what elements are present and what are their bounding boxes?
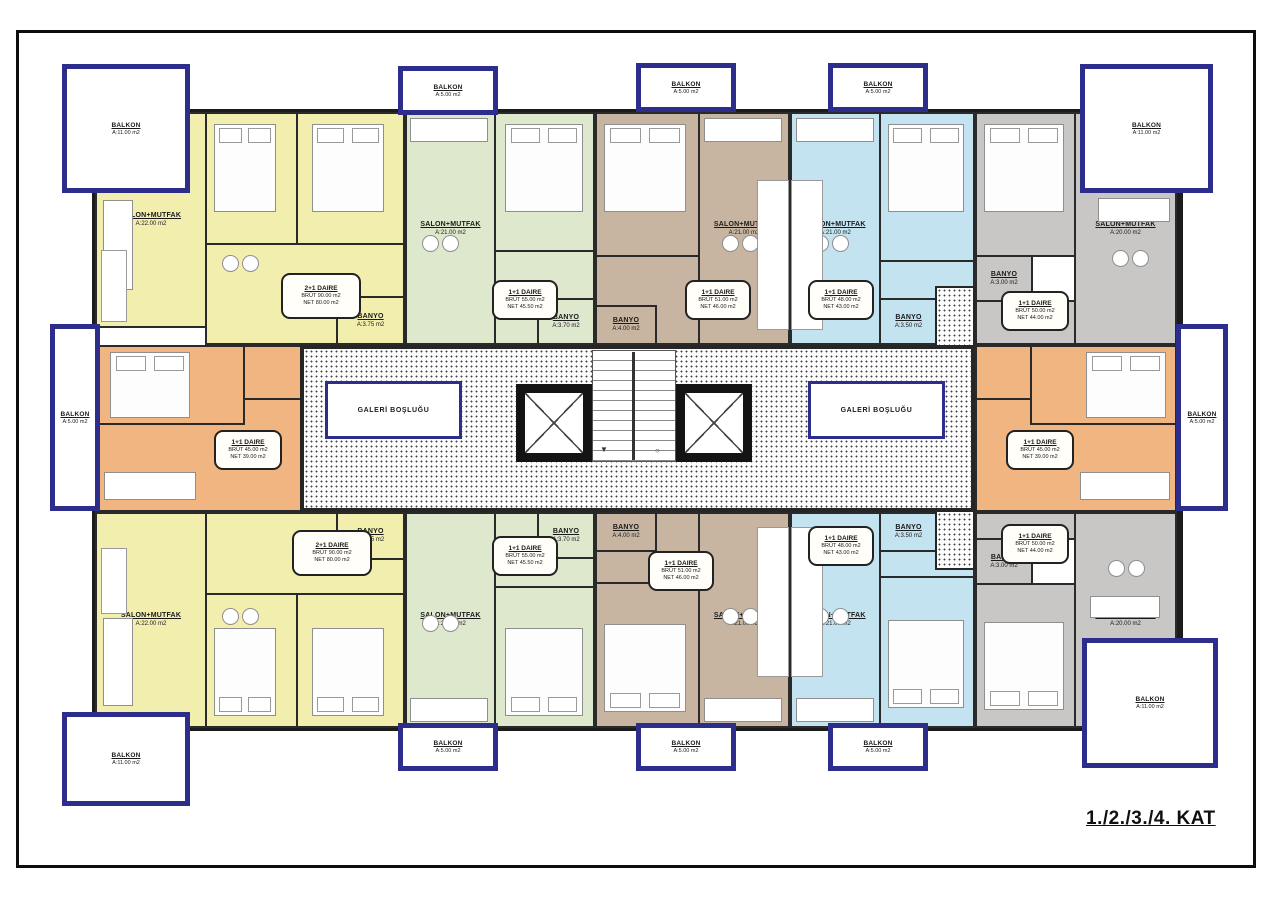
balcony-bottom-2: BALKON A:5.00 m2 bbox=[636, 723, 736, 771]
unit-label-blue-bottom: 1+1 DAIRE BRÜT 48.00 m2 NET 43.00 m2 bbox=[808, 526, 874, 566]
room-area: A:3.70 m2 bbox=[552, 323, 579, 330]
unit-brut: BRÜT 48.00 m2 bbox=[821, 543, 860, 550]
unit-net: NET 80.00 m2 bbox=[303, 300, 338, 307]
unit-net: NET 80.00 m2 bbox=[314, 557, 349, 564]
sofa-icon bbox=[1090, 596, 1160, 618]
dining-table-icon bbox=[1108, 560, 1145, 577]
kitchen-counter bbox=[757, 527, 789, 677]
balcony-area: A:11.00 m2 bbox=[112, 760, 140, 766]
elevator-left-icon bbox=[516, 384, 592, 462]
room-area: A:3.50 m2 bbox=[895, 323, 922, 330]
sofa-icon bbox=[410, 698, 488, 722]
sofa-icon bbox=[104, 472, 196, 500]
bed-icon bbox=[888, 620, 964, 708]
balcony-top-3: BALKON A:5.00 m2 bbox=[828, 63, 928, 112]
balcony-top-left: BALKON A:11.00 m2 bbox=[62, 64, 190, 193]
bed-icon bbox=[984, 124, 1064, 212]
unit-label-gray-top: 1+1 DAIRE BRÜT 50.00 m2 NET 44.00 m2 bbox=[1001, 291, 1069, 331]
balcony-middle-left: BALKON A:5.00 m2 bbox=[50, 324, 100, 511]
unit-label-green-top: 1+1 DAIRE BRÜT 55.00 m2 NET 45.50 m2 bbox=[492, 280, 558, 320]
stairs-start-circle-icon: ○ bbox=[655, 446, 660, 455]
dining-table-icon bbox=[722, 608, 759, 625]
room-label: BANYO bbox=[357, 313, 383, 321]
stairs-down-arrow-icon: ▼ bbox=[600, 445, 608, 454]
bed-icon bbox=[505, 124, 583, 212]
unit-brut: BRÜT 90.00 m2 bbox=[312, 550, 351, 557]
sofa-icon bbox=[704, 118, 782, 142]
unit-brut: BRÜT 51.00 m2 bbox=[698, 297, 737, 304]
balcony-label: BALKON bbox=[111, 122, 140, 129]
unit-net: NET 45.50 m2 bbox=[507, 304, 542, 311]
unit-brut: BRÜT 50.00 m2 bbox=[1015, 308, 1054, 315]
galeri-boslugu-left: GALERİ BOŞLUĞU bbox=[325, 381, 462, 439]
kitchen-counter bbox=[101, 548, 127, 614]
unit-type: 1+1 DAIRE bbox=[508, 289, 541, 297]
dining-table-icon bbox=[422, 235, 459, 252]
unit-label-brown-bottom: 1+1 DAIRE BRÜT 51.00 m2 NET 46.00 m2 bbox=[648, 551, 714, 591]
balcony-area: A:5.00 m2 bbox=[865, 748, 890, 754]
unit-type: 1+1 DAIRE bbox=[824, 289, 857, 297]
unit-net: NET 43.00 m2 bbox=[823, 550, 858, 557]
room-area: A:4.00 m2 bbox=[612, 326, 639, 333]
bed-icon bbox=[214, 628, 276, 716]
unit-label-yellow-top: 2+1 DAIRE BRÜT 90.00 m2 NET 80.00 m2 bbox=[281, 273, 361, 319]
balcony-label: BALKON bbox=[863, 740, 892, 747]
dining-table-icon bbox=[1112, 250, 1149, 267]
bed-icon bbox=[312, 124, 384, 212]
unit-brut: BRÜT 50.00 m2 bbox=[1015, 541, 1054, 548]
room-area: A:3.00 m2 bbox=[990, 280, 1017, 287]
balcony-label: BALKON bbox=[671, 740, 700, 747]
corridor-vestibule-bottom bbox=[935, 510, 975, 570]
balcony-label: BALKON bbox=[1135, 696, 1164, 703]
room-banyo: BANYO A:4.00 m2 bbox=[595, 512, 657, 552]
balcony-area: A:5.00 m2 bbox=[62, 419, 87, 425]
sofa-icon bbox=[704, 698, 782, 722]
unit-type: 1+1 DAIRE bbox=[701, 289, 734, 297]
elevator-right-icon bbox=[676, 384, 752, 462]
unit-net: NET 43.00 m2 bbox=[823, 304, 858, 311]
bed-icon bbox=[604, 624, 686, 712]
balcony-area: A:11.00 m2 bbox=[1133, 130, 1161, 136]
room-area: A:4.00 m2 bbox=[612, 533, 639, 540]
unit-type: 2+1 DAIRE bbox=[304, 285, 337, 293]
balcony-top-1: BALKON A:5.00 m2 bbox=[398, 66, 498, 115]
room-area: A:20.00 m2 bbox=[1110, 230, 1141, 237]
dining-table-icon bbox=[222, 255, 259, 272]
room-banyo bbox=[243, 345, 302, 400]
balcony-label: BALKON bbox=[433, 740, 462, 747]
bed-icon bbox=[110, 352, 190, 418]
bed-icon bbox=[1086, 352, 1166, 418]
unit-net: NET 46.00 m2 bbox=[700, 304, 735, 311]
unit-brut: BRÜT 51.00 m2 bbox=[661, 568, 700, 575]
room-banyo: BANYO A:3.50 m2 bbox=[879, 512, 938, 552]
unit-type: 1+1 DAIRE bbox=[664, 560, 697, 568]
room-label: BANYO bbox=[613, 524, 639, 532]
unit-type: 2+1 DAIRE bbox=[315, 542, 348, 550]
balcony-area: A:11.00 m2 bbox=[112, 130, 140, 136]
unit-net: NET 39.00 m2 bbox=[230, 454, 265, 461]
room-label: BANYO bbox=[991, 271, 1017, 279]
sofa-icon bbox=[103, 618, 133, 706]
room-label: BANYO bbox=[613, 317, 639, 325]
room-area: A:20.00 m2 bbox=[1110, 621, 1141, 628]
unit-label-orange-left: 1+1 DAIRE BRÜT 45.00 m2 NET 39.00 m2 bbox=[214, 430, 282, 470]
room-banyo: BANYO A:3.50 m2 bbox=[879, 298, 938, 345]
unit-brut: BRÜT 55.00 m2 bbox=[505, 553, 544, 560]
kitchen-counter bbox=[101, 250, 127, 322]
balcony-area: A:5.00 m2 bbox=[673, 748, 698, 754]
room-area: A:22.00 m2 bbox=[136, 221, 167, 228]
balcony-top-2: BALKON A:5.00 m2 bbox=[636, 63, 736, 112]
sofa-icon bbox=[796, 698, 874, 722]
sofa-icon bbox=[410, 118, 488, 142]
unit-type: 1+1 DAIRE bbox=[508, 545, 541, 553]
unit-net: NET 44.00 m2 bbox=[1017, 315, 1052, 322]
unit-brut: BRÜT 45.00 m2 bbox=[228, 447, 267, 454]
floor-title: 1./2./3./4. KAT bbox=[1086, 808, 1216, 830]
unit-brut: BRÜT 48.00 m2 bbox=[821, 297, 860, 304]
unit-label-blue-top: 1+1 DAIRE BRÜT 48.00 m2 NET 43.00 m2 bbox=[808, 280, 874, 320]
bed-icon bbox=[604, 124, 686, 212]
unit-label-gray-bottom: 1+1 DAIRE BRÜT 50.00 m2 NET 44.00 m2 bbox=[1001, 524, 1069, 564]
dining-table-icon bbox=[422, 615, 459, 632]
galeri-label: GALERİ BOŞLUĞU bbox=[841, 407, 913, 414]
balcony-label: BALKON bbox=[111, 752, 140, 759]
balcony-label: BALKON bbox=[433, 84, 462, 91]
balcony-bottom-1: BALKON A:5.00 m2 bbox=[398, 723, 498, 771]
kitchen-counter bbox=[757, 180, 789, 330]
unit-net: NET 46.00 m2 bbox=[663, 575, 698, 582]
unit-label-orange-right: 1+1 DAIRE BRÜT 45.00 m2 NET 39.00 m2 bbox=[1006, 430, 1074, 470]
room-area: A:3.50 m2 bbox=[895, 533, 922, 540]
balcony-area: A:5.00 m2 bbox=[673, 89, 698, 95]
unit-type: 1+1 DAIRE bbox=[1023, 439, 1056, 447]
bed-icon bbox=[888, 124, 964, 212]
room-label: BANYO bbox=[895, 314, 921, 322]
galeri-label: GALERİ BOŞLUĞU bbox=[358, 407, 430, 414]
balcony-bottom-right: BALKON A:11.00 m2 bbox=[1082, 638, 1218, 768]
unit-label-brown-top: 1+1 DAIRE BRÜT 51.00 m2 NET 46.00 m2 bbox=[685, 280, 751, 320]
balcony-label: BALKON bbox=[60, 411, 89, 418]
unit-brut: BRÜT 45.00 m2 bbox=[1020, 447, 1059, 454]
sofa-icon bbox=[796, 118, 874, 142]
unit-label-yellow-bottom: 2+1 DAIRE BRÜT 90.00 m2 NET 80.00 m2 bbox=[292, 530, 372, 576]
balcony-area: A:5.00 m2 bbox=[865, 89, 890, 95]
unit-type: 1+1 DAIRE bbox=[824, 535, 857, 543]
room-area: A:3.75 m2 bbox=[357, 322, 384, 329]
bed-icon bbox=[984, 622, 1064, 710]
bed-icon bbox=[214, 124, 276, 212]
balcony-area: A:5.00 m2 bbox=[435, 748, 460, 754]
unit-brut: BRÜT 90.00 m2 bbox=[301, 293, 340, 300]
sofa-icon bbox=[1098, 198, 1170, 222]
unit-net: NET 44.00 m2 bbox=[1017, 548, 1052, 555]
unit-net: NET 39.00 m2 bbox=[1022, 454, 1057, 461]
bed-icon bbox=[312, 628, 384, 716]
unit-type: 1+1 DAIRE bbox=[1018, 300, 1051, 308]
room-label: BANYO bbox=[895, 524, 921, 532]
sofa-icon bbox=[1080, 472, 1170, 500]
corridor-vestibule-top bbox=[935, 286, 975, 347]
room-salon-mutfak: SALON+MUTFAK A:21.00 m2 bbox=[405, 112, 496, 345]
room-banyo: BANYO A:4.00 m2 bbox=[595, 305, 657, 345]
unit-net: NET 45.50 m2 bbox=[507, 560, 542, 567]
room-banyo bbox=[975, 345, 1032, 400]
room-label: SALON+MUTFAK bbox=[420, 221, 480, 229]
balcony-area: A:5.00 m2 bbox=[435, 92, 460, 98]
balcony-area: A:11.00 m2 bbox=[1136, 704, 1164, 710]
floor-plan-sheet: SALON+MUTFAK A:22.00 m2 YATAK ODASI A:12… bbox=[0, 0, 1274, 900]
unit-type: 1+1 DAIRE bbox=[1018, 533, 1051, 541]
dining-table-icon bbox=[722, 235, 759, 252]
galeri-boslugu-right: GALERİ BOŞLUĞU bbox=[808, 381, 945, 439]
room-area: A:22.00 m2 bbox=[136, 621, 167, 628]
unit-type: 1+1 DAIRE bbox=[231, 439, 264, 447]
balcony-bottom-3: BALKON A:5.00 m2 bbox=[828, 723, 928, 771]
balcony-label: BALKON bbox=[1132, 122, 1161, 129]
balcony-label: BALKON bbox=[1187, 411, 1216, 418]
balcony-label: BALKON bbox=[863, 81, 892, 88]
room-label: BANYO bbox=[553, 528, 579, 536]
balcony-label: BALKON bbox=[671, 81, 700, 88]
balcony-middle-right: BALKON A:5.00 m2 bbox=[1176, 324, 1228, 511]
staircase-rail bbox=[632, 352, 635, 460]
balcony-area: A:5.00 m2 bbox=[1189, 419, 1214, 425]
balcony-bottom-left: BALKON A:11.00 m2 bbox=[62, 712, 190, 806]
unit-label-green-bottom: 1+1 DAIRE BRÜT 55.00 m2 NET 45.50 m2 bbox=[492, 536, 558, 576]
dining-table-icon bbox=[222, 608, 259, 625]
balcony-top-right: BALKON A:11.00 m2 bbox=[1080, 64, 1213, 193]
bed-icon bbox=[505, 628, 583, 716]
unit-brut: BRÜT 55.00 m2 bbox=[505, 297, 544, 304]
